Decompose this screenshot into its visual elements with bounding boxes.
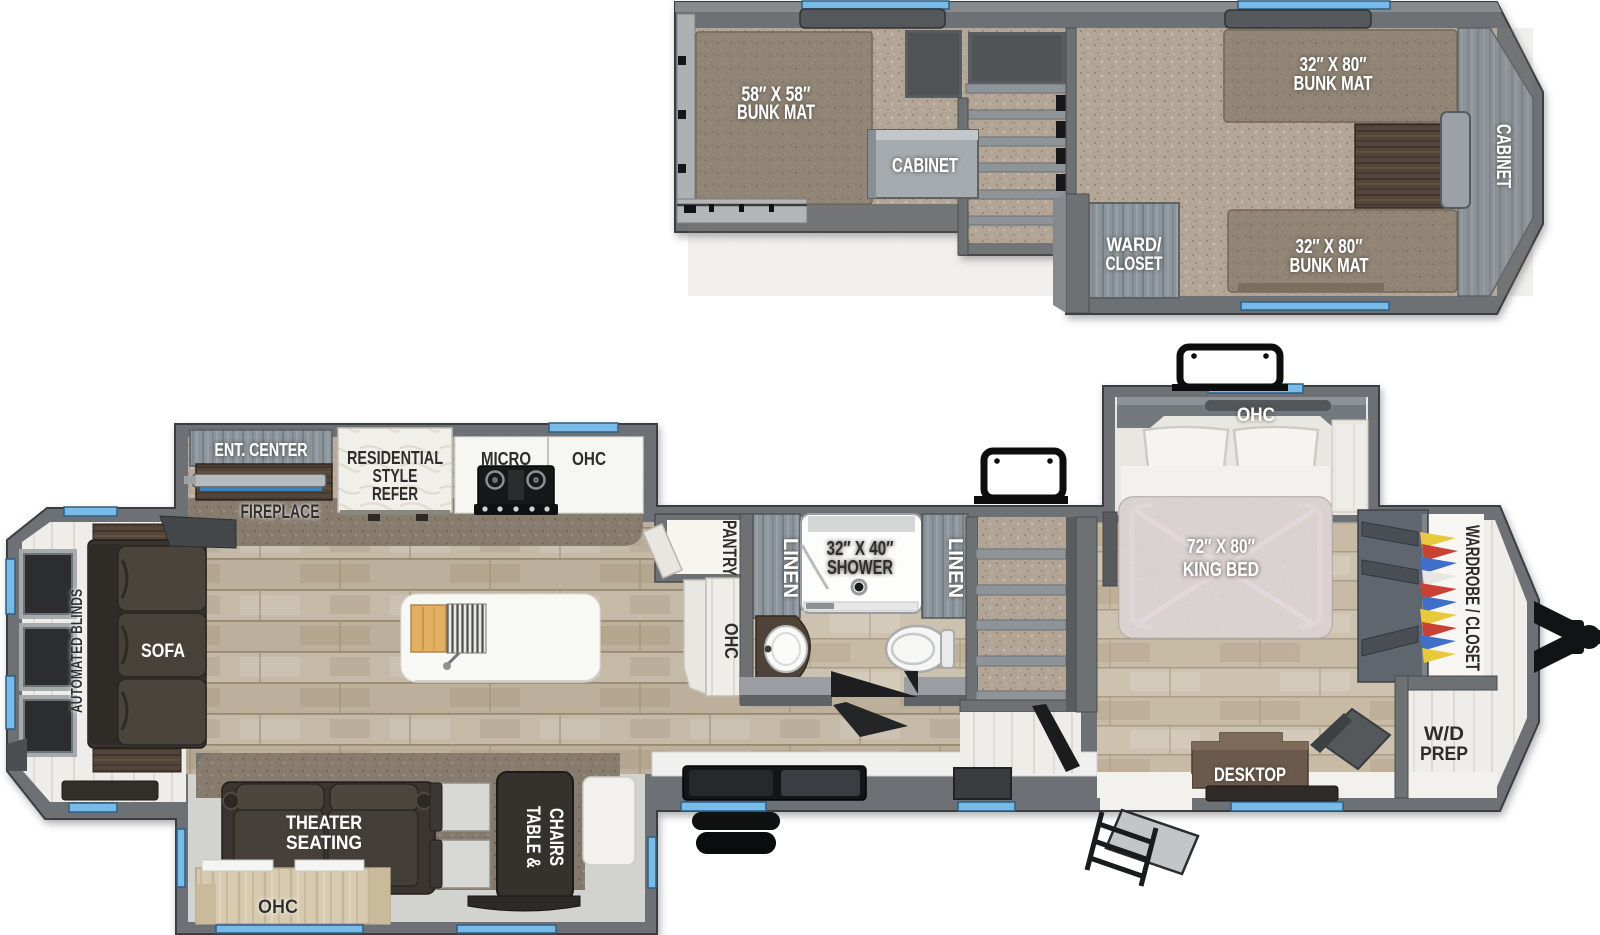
svg-text:FIREPLACE: FIREPLACE — [241, 502, 320, 523]
svg-text:THEATER: THEATER — [286, 813, 362, 834]
svg-text:CLOSET: CLOSET — [1106, 254, 1163, 275]
svg-text:WARD/: WARD/ — [1107, 235, 1163, 256]
svg-text:OHC: OHC — [1237, 405, 1275, 426]
svg-text:TABLE &: TABLE & — [522, 806, 543, 868]
svg-text:BUNK MAT: BUNK MAT — [737, 100, 815, 124]
svg-text:CABINET: CABINET — [892, 155, 958, 177]
svg-text:CABINET: CABINET — [1492, 124, 1514, 188]
svg-text:LINEN: LINEN — [944, 538, 967, 598]
svg-text:BUNK MAT: BUNK MAT — [1290, 254, 1369, 277]
svg-text:BUNK MAT: BUNK MAT — [1294, 72, 1373, 95]
svg-text:REFER: REFER — [372, 484, 418, 504]
svg-text:SEATING: SEATING — [286, 833, 362, 854]
svg-text:SOFA: SOFA — [141, 641, 185, 662]
svg-text:CHAIRS: CHAIRS — [545, 808, 566, 866]
svg-text:72″ X 80″: 72″ X 80″ — [1187, 535, 1255, 558]
svg-text:W/D: W/D — [1424, 724, 1464, 745]
svg-text:DESKTOP: DESKTOP — [1214, 765, 1286, 786]
svg-text:LINEN: LINEN — [779, 538, 802, 598]
svg-text:KING BED: KING BED — [1183, 558, 1259, 581]
svg-text:SHOWER: SHOWER — [827, 557, 893, 579]
svg-text:WARDROBE / CLOSET: WARDROBE / CLOSET — [1461, 525, 1482, 671]
svg-text:OHC: OHC — [258, 897, 298, 918]
svg-text:PREP: PREP — [1420, 744, 1468, 765]
svg-text:OHC: OHC — [572, 449, 606, 469]
svg-text:ENT. CENTER: ENT. CENTER — [215, 440, 308, 460]
svg-text:PANTRY: PANTRY — [718, 520, 739, 576]
svg-text:RESIDENTIAL: RESIDENTIAL — [347, 448, 443, 468]
svg-text:STYLE: STYLE — [373, 466, 418, 486]
svg-text:OHC: OHC — [721, 623, 741, 659]
svg-text:AUTOMATED BLINDS: AUTOMATED BLINDS — [69, 589, 86, 713]
